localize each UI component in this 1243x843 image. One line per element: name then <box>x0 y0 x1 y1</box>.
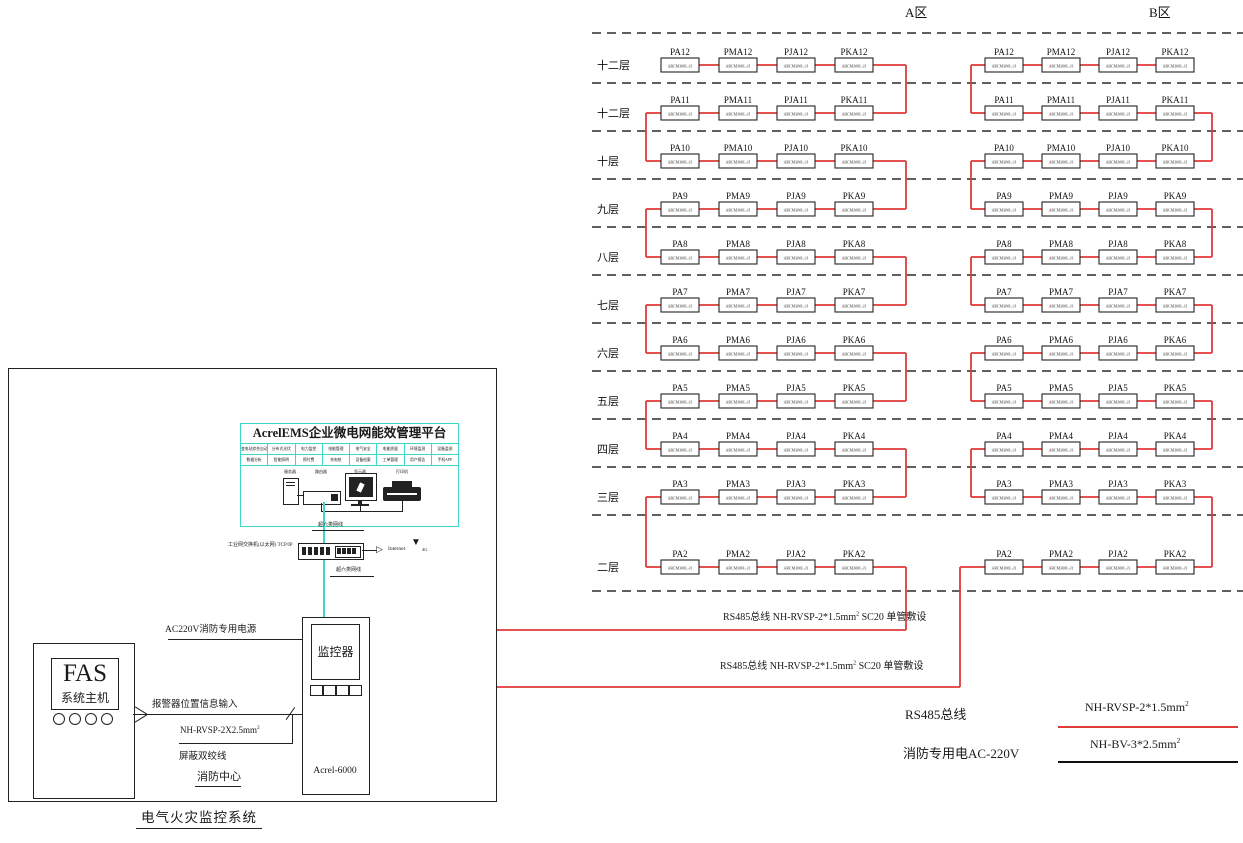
distribution-box-label: PJA10 <box>784 143 809 153</box>
device-wire <box>360 506 361 512</box>
distribution-box-label: PA2 <box>672 549 687 559</box>
fas-indicator <box>69 713 81 725</box>
distribution-box-label: PMA9 <box>1049 191 1074 201</box>
distribution-box-label: PJA11 <box>784 95 808 105</box>
distribution-box-label: PKA6 <box>843 335 866 345</box>
detector-model-text: ARCM300L-J1 <box>991 64 1016 69</box>
distribution-box-label: PMA12 <box>724 47 753 57</box>
detector-model-text: ARCM300L-J1 <box>991 400 1016 405</box>
cat6-cable-tick <box>312 530 364 531</box>
ethernet-drop-line <box>323 558 325 617</box>
distribution-box-label: PMA4 <box>726 431 751 441</box>
detector-model-text: ARCM300L-J1 <box>783 208 808 213</box>
distribution-box-label: PA3 <box>672 479 688 489</box>
detector-model-text: ARCM300L-J1 <box>841 448 866 453</box>
detector-model-text: ARCM300L-J1 <box>1162 448 1187 453</box>
detector-model-text: ARCM300L-J1 <box>1162 160 1187 165</box>
distribution-box-label: PKA2 <box>1164 549 1187 559</box>
distribution-box-label: PKA6 <box>1164 335 1187 345</box>
fas-indicator <box>53 713 65 725</box>
distribution-box-label: PMA11 <box>724 95 752 105</box>
detector-model-text: ARCM300L-J1 <box>1162 496 1187 501</box>
detector-model-text: ARCM300L-J1 <box>783 256 808 261</box>
detector-model-text: ARCM300L-J1 <box>841 566 866 571</box>
legend-power-label: 消防专用电AC-220V <box>903 743 1019 762</box>
detector-model-text: ARCM300L-J1 <box>725 448 750 453</box>
distribution-box-label: PA12 <box>994 47 1014 57</box>
distribution-box-label: PMA5 <box>726 383 751 393</box>
device-wire <box>321 511 402 512</box>
floor-label: 三层 <box>597 491 619 504</box>
distribution-box-label: PJA9 <box>1108 191 1128 201</box>
detector-model-text: ARCM300L-J1 <box>783 352 808 357</box>
rs485-bus-label: RS485总线 NH-RVSP-2*1.5mm2 SC20 单管敷设 <box>723 608 926 623</box>
distribution-box-label: PA8 <box>672 239 688 249</box>
distribution-box-label: PA5 <box>996 383 1012 393</box>
distribution-box-label: PMA6 <box>726 335 751 345</box>
detector-model-text: ARCM300L-J1 <box>783 496 808 501</box>
detector-model-text: ARCM300L-J1 <box>991 208 1016 213</box>
detector-model-text: ARCM300L-J1 <box>725 256 750 261</box>
platform-feature-cell: 设备监测 <box>432 444 458 455</box>
rs485-bus-label: RS485总线 NH-RVSP-2*1.5mm2 SC20 单管敷设 <box>720 657 923 672</box>
detector-model-text: ARCM300L-J1 <box>991 496 1016 501</box>
platform-feature-cell: 电力监控 <box>296 444 323 455</box>
distribution-box-label: PMA12 <box>1047 47 1076 57</box>
detector-model-text: ARCM300L-J1 <box>991 160 1016 165</box>
device-label: 路由器 <box>306 469 336 475</box>
detector-model-text: ARCM300L-J1 <box>841 304 866 309</box>
distribution-box-label: PKA11 <box>841 95 868 105</box>
distribution-box-label: PA2 <box>996 549 1011 559</box>
fire-center-underline <box>195 786 241 787</box>
platform-feature-cell: 电气安全 <box>350 444 377 455</box>
detector-model-text: ARCM300L-J1 <box>1162 112 1187 117</box>
distribution-box-label: PKA12 <box>1161 47 1188 57</box>
floor-label: 五层 <box>597 395 619 408</box>
cable-spec-label: NH-RVSP-2X2.5mm2 <box>180 725 260 735</box>
distribution-box-label: PJA11 <box>1106 95 1130 105</box>
detector-model-text: ARCM300L-J1 <box>1048 256 1073 261</box>
distribution-box-label: PA10 <box>994 143 1014 153</box>
legend-rs485-label: RS485总线 <box>905 704 966 723</box>
detector-model-text: ARCM300L-J1 <box>1162 208 1187 213</box>
distribution-box-label: PMA10 <box>724 143 753 153</box>
detector-model-text: ARCM300L-J1 <box>1048 566 1073 571</box>
detector-model-text: ARCM300L-J1 <box>667 112 692 117</box>
detector-model-text: ARCM300L-J1 <box>841 400 866 405</box>
industrial-switch <box>298 543 364 560</box>
detector-model-text: ARCM300L-J1 <box>783 64 808 69</box>
fas-title: FAS <box>52 659 118 689</box>
distribution-box-label: PA11 <box>670 95 689 105</box>
distribution-box-label: PMA3 <box>726 479 751 489</box>
distribution-box-label: PA9 <box>672 191 688 201</box>
floor-label: 七层 <box>597 299 619 312</box>
distribution-box-label: PKA12 <box>840 47 867 57</box>
power-supply-label: AC220V消防专用电源 <box>165 621 256 635</box>
detector-model-text: ARCM300L-J1 <box>783 566 808 571</box>
distribution-box-label: PMA9 <box>726 191 751 201</box>
distribution-box-label: PJA5 <box>1108 383 1128 393</box>
detector-model-text: ARCM300L-J1 <box>1105 112 1130 117</box>
distribution-box-label: PJA5 <box>786 383 806 393</box>
detector-model-text: ARCM300L-J1 <box>991 448 1016 453</box>
distribution-box-label: PKA8 <box>843 239 866 249</box>
detector-model-text: ARCM300L-J1 <box>725 400 750 405</box>
detector-model-text: ARCM300L-J1 <box>1105 64 1130 69</box>
detector-model-text: ARCM300L-J1 <box>1105 496 1130 501</box>
distribution-box-label: PMA4 <box>1049 431 1074 441</box>
floor-label: 二层 <box>597 561 619 574</box>
detector-model-text: ARCM300L-J1 <box>991 352 1016 357</box>
detector-model-text: ARCM300L-J1 <box>1105 304 1130 309</box>
detector-model-text: ARCM300L-J1 <box>1105 448 1130 453</box>
distribution-box-label: PMA3 <box>1049 479 1074 489</box>
fas-host-box: FAS 系统主机 <box>33 643 135 799</box>
platform-feature-table: 变电站综合自动化分布式光伏电力监控电能管理电气安全电能质量环境监测设备监测数据分… <box>241 444 458 466</box>
legend-black-cable-label: NH-BV-3*2.5mm2 <box>1090 737 1180 752</box>
distribution-box-label: PA7 <box>996 287 1012 297</box>
distribution-box-label: PJA2 <box>1108 549 1128 559</box>
distribution-box-label: PJA6 <box>1108 335 1128 345</box>
floor-label: 十层 <box>597 154 619 168</box>
detector-model-text: ARCM300L-J1 <box>1048 64 1073 69</box>
detector-model-text: ARCM300L-J1 <box>783 160 808 165</box>
platform-feature-cell: 电能管理 <box>323 444 350 455</box>
distribution-box-label: PA7 <box>672 287 688 297</box>
fas-subtitle: 系统主机 <box>52 689 118 706</box>
detector-model-text: ARCM300L-J1 <box>725 352 750 357</box>
distribution-box-label: PKA8 <box>1164 239 1187 249</box>
detector-model-text: ARCM300L-J1 <box>991 112 1016 117</box>
zone-title: B区 <box>1149 5 1171 20</box>
detector-model-text: ARCM300L-J1 <box>1162 304 1187 309</box>
distribution-box-label: PJA7 <box>1108 287 1128 297</box>
cabinet-model: Acrel-6000 <box>303 766 367 776</box>
distribution-box-label: PKA7 <box>1164 287 1187 297</box>
platform-feature-cell: 环境监测 <box>405 444 432 455</box>
detector-model-text: ARCM300L-J1 <box>1048 112 1073 117</box>
server-icon <box>283 478 299 505</box>
fas-indicator <box>101 713 113 725</box>
detector-model-text: ARCM300L-J1 <box>667 160 692 165</box>
distribution-box-label: PJA12 <box>1106 47 1130 57</box>
cable-spec-leader <box>179 743 293 744</box>
detector-model-text: ARCM300L-J1 <box>667 496 692 501</box>
detector-model-text: ARCM300L-J1 <box>841 112 866 117</box>
detector-model-text: ARCM300L-J1 <box>1162 400 1187 405</box>
distribution-box-label: PA6 <box>672 335 688 345</box>
distribution-box-label: PMA7 <box>726 287 751 297</box>
detector-model-text: ARCM300L-J1 <box>725 304 750 309</box>
detector-model-text: ARCM300L-J1 <box>1105 400 1130 405</box>
distribution-box-label: PA9 <box>996 191 1012 201</box>
detector-model-text: ARCM300L-J1 <box>1048 496 1073 501</box>
zone-title: A区 <box>905 5 927 20</box>
printer-tray <box>392 481 412 487</box>
distribution-box-label: PKA10 <box>840 143 868 153</box>
distribution-box-label: PJA10 <box>1106 143 1131 153</box>
distribution-box-label: PA10 <box>670 143 690 153</box>
alarm-signal-label: 报警器位置信息输入 <box>152 696 238 710</box>
distribution-box-label: PJA2 <box>786 549 806 559</box>
detector-model-text: ARCM300L-J1 <box>667 448 692 453</box>
distribution-box-label: PMA2 <box>1049 549 1073 559</box>
detector-model-text: ARCM300L-J1 <box>725 496 750 501</box>
legend-red-cable-sample <box>1058 726 1238 728</box>
distribution-box-label: PKA5 <box>1164 383 1187 393</box>
cat6-cable-label: 超六类网线 <box>336 566 361 573</box>
legend-red-cable-label: NH-RVSP-2*1.5mm2 <box>1085 700 1189 715</box>
distribution-box-label: PA3 <box>996 479 1012 489</box>
detector-model-text: ARCM300L-J1 <box>991 566 1016 571</box>
distribution-box-label: PJA4 <box>786 431 806 441</box>
power-supply-line <box>168 639 302 640</box>
cat6-cable-tick <box>330 576 374 577</box>
distribution-box-label: PKA4 <box>1164 431 1187 441</box>
diagram-title: 电气火灾监控系统 <box>136 806 262 829</box>
distribution-box-label: PMA6 <box>1049 335 1074 345</box>
detector-model-text: ARCM300L-J1 <box>1105 256 1130 261</box>
detector-model-text: ARCM300L-J1 <box>783 400 808 405</box>
floor-label: 八层 <box>597 251 619 264</box>
distribution-box-label: PMA10 <box>1047 143 1076 153</box>
detector-model-text: ARCM300L-J1 <box>1105 352 1130 357</box>
legend-black-cable-sample <box>1058 761 1238 763</box>
platform-title: AcrelEMS企业微电网能效管理平台 <box>241 424 458 444</box>
detector-model-text: ARCM300L-J1 <box>725 208 750 213</box>
distribution-box-label: PKA10 <box>1161 143 1189 153</box>
fire-center-label: 消防中心 <box>197 768 241 784</box>
floor-label: 十二层 <box>597 58 630 72</box>
device-label: 打印机 <box>387 469 417 475</box>
distribution-box-label: PA4 <box>996 431 1012 441</box>
detector-model-text: ARCM300L-J1 <box>1048 448 1073 453</box>
detector-model-text: ARCM300L-J1 <box>1105 160 1130 165</box>
cable-spec-leader <box>292 715 293 744</box>
detector-model-text: ARCM300L-J1 <box>1162 64 1187 69</box>
detector-model-text: ARCM300L-J1 <box>1105 566 1130 571</box>
detector-model-text: ARCM300L-J1 <box>1162 566 1187 571</box>
distribution-box-label: PKA2 <box>843 549 866 559</box>
detector-model-text: ARCM300L-J1 <box>667 352 692 357</box>
distribution-box-label: PJA4 <box>1108 431 1128 441</box>
distribution-box-label: PA11 <box>994 95 1013 105</box>
detector-model-text: ARCM300L-J1 <box>1048 160 1073 165</box>
distribution-box-label: PKA3 <box>843 479 866 489</box>
distribution-box-label: PKA9 <box>843 191 866 201</box>
platform-feature-cell: 电能质量 <box>377 444 404 455</box>
internet-label: Internet <box>388 546 405 552</box>
detector-model-text: ARCM300L-J1 <box>841 160 866 165</box>
detector-model-text: ARCM300L-J1 <box>1048 208 1073 213</box>
detector-model-text: ARCM300L-J1 <box>667 256 692 261</box>
platform-devices-area: 服务器路由器显示器打印机 <box>241 465 458 526</box>
drawing-canvas: PA12ARCM300L-J1PMA12ARCM300L-J1PJA12ARCM… <box>0 0 1243 843</box>
distribution-box-label: PMA2 <box>726 549 750 559</box>
distribution-box-label: PMA8 <box>726 239 751 249</box>
distribution-box-label: PJA3 <box>786 479 806 489</box>
detector-model-text: ARCM300L-J1 <box>667 400 692 405</box>
fas-inner-box: FAS 系统主机 <box>51 658 119 710</box>
acrel-6000-cabinet: 监控器 Acrel-6000 <box>302 617 370 795</box>
arrow-right-icon: ▷ <box>376 544 383 555</box>
detector-model-text: ARCM300L-J1 <box>725 160 750 165</box>
distribution-box-label: PKA5 <box>843 383 866 393</box>
distribution-box-label: PMA8 <box>1049 239 1074 249</box>
distribution-box-label: PJA7 <box>786 287 806 297</box>
distribution-box-label: PMA7 <box>1049 287 1074 297</box>
detector-model-text: ARCM300L-J1 <box>1048 304 1073 309</box>
detector-model-text: ARCM300L-J1 <box>725 112 750 117</box>
cabinet-port <box>336 685 349 696</box>
detector-model-text: ARCM300L-J1 <box>783 304 808 309</box>
distribution-box-label: PJA3 <box>1108 479 1128 489</box>
detector-model-text: ARCM300L-J1 <box>667 304 692 309</box>
distribution-box-label: PA6 <box>996 335 1012 345</box>
detector-model-text: ARCM300L-J1 <box>1048 352 1073 357</box>
distribution-box-label: PKA7 <box>843 287 866 297</box>
detector-model-text: ARCM300L-J1 <box>725 64 750 69</box>
detector-model-text: ARCM300L-J1 <box>1105 208 1130 213</box>
floor-label: 四层 <box>597 443 619 456</box>
wireless-antenna-icon: ▼ <box>411 537 421 548</box>
wireless-label: 4G <box>422 547 428 552</box>
distribution-box-label: PA5 <box>672 383 688 393</box>
detector-model-text: ARCM300L-J1 <box>841 352 866 357</box>
distribution-box-label: PA12 <box>670 47 690 57</box>
internet-link-line <box>362 550 377 551</box>
device-wire <box>297 495 303 496</box>
platform-feature-cell: 分布式光伏 <box>268 444 295 455</box>
detector-model-text: ARCM300L-J1 <box>841 208 866 213</box>
router-icon <box>303 491 341 505</box>
detector-model-text: ARCM300L-J1 <box>1048 400 1073 405</box>
distribution-box-label: PJA12 <box>784 47 808 57</box>
distribution-box-label: PMA11 <box>1047 95 1075 105</box>
detector-model-text: ARCM300L-J1 <box>1162 352 1187 357</box>
distribution-box-label: PA4 <box>672 431 688 441</box>
detector-model-text: ARCM300L-J1 <box>667 64 692 69</box>
detector-model-text: ARCM300L-J1 <box>783 448 808 453</box>
detector-model-text: ARCM300L-J1 <box>1162 256 1187 261</box>
monitor-icon <box>345 473 377 501</box>
detector-model-text: ARCM300L-J1 <box>991 304 1016 309</box>
detector-model-text: ARCM300L-J1 <box>841 256 866 261</box>
acrel-ems-platform: AcrelEMS企业微电网能效管理平台 变电站综合自动化分布式光伏电力监控电能管… <box>240 423 459 527</box>
detector-model-text: ARCM300L-J1 <box>841 64 866 69</box>
device-label: 服务器 <box>275 469 305 475</box>
detector-model-text: ARCM300L-J1 <box>991 256 1016 261</box>
floor-label: 九层 <box>597 203 619 216</box>
distribution-box-label: PMA5 <box>1049 383 1074 393</box>
detector-model-text: ARCM300L-J1 <box>841 496 866 501</box>
distribution-box-label: PKA9 <box>1164 191 1187 201</box>
distribution-box-label: PJA8 <box>1108 239 1128 249</box>
detector-model-text: ARCM300L-J1 <box>783 112 808 117</box>
fas-indicator <box>85 713 97 725</box>
switch-label: 工业网交换机(以太网) TCP/IP <box>228 541 293 548</box>
platform-feature-cell: 变电站综合自动化 <box>241 444 268 455</box>
cat6-cable-label: 超六类网线 <box>318 521 343 528</box>
detector-model-text: ARCM300L-J1 <box>667 208 692 213</box>
detector-model-text: ARCM300L-J1 <box>667 566 692 571</box>
alarm-signal-line <box>133 714 302 715</box>
distribution-box-label: PJA8 <box>786 239 806 249</box>
cabinet-port <box>310 685 323 696</box>
distribution-box-label: PKA3 <box>1164 479 1187 489</box>
monitor-screen: 监控器 <box>311 624 360 680</box>
cabinet-port <box>349 685 362 696</box>
detector-model-text: ARCM300L-J1 <box>725 566 750 571</box>
distribution-box-label: PA8 <box>996 239 1012 249</box>
distribution-box-label: PJA6 <box>786 335 806 345</box>
cabinet-port <box>323 685 336 696</box>
printer-icon <box>383 487 421 501</box>
distribution-box-label: PJA9 <box>786 191 806 201</box>
device-wire <box>402 501 403 512</box>
floor-label: 六层 <box>597 347 619 360</box>
distribution-box-label: PKA4 <box>843 431 866 441</box>
shield-cable-label: 屏蔽双绞线 <box>179 748 227 762</box>
floor-label: 十二层 <box>597 106 630 120</box>
distribution-box-label: PKA11 <box>1162 95 1189 105</box>
